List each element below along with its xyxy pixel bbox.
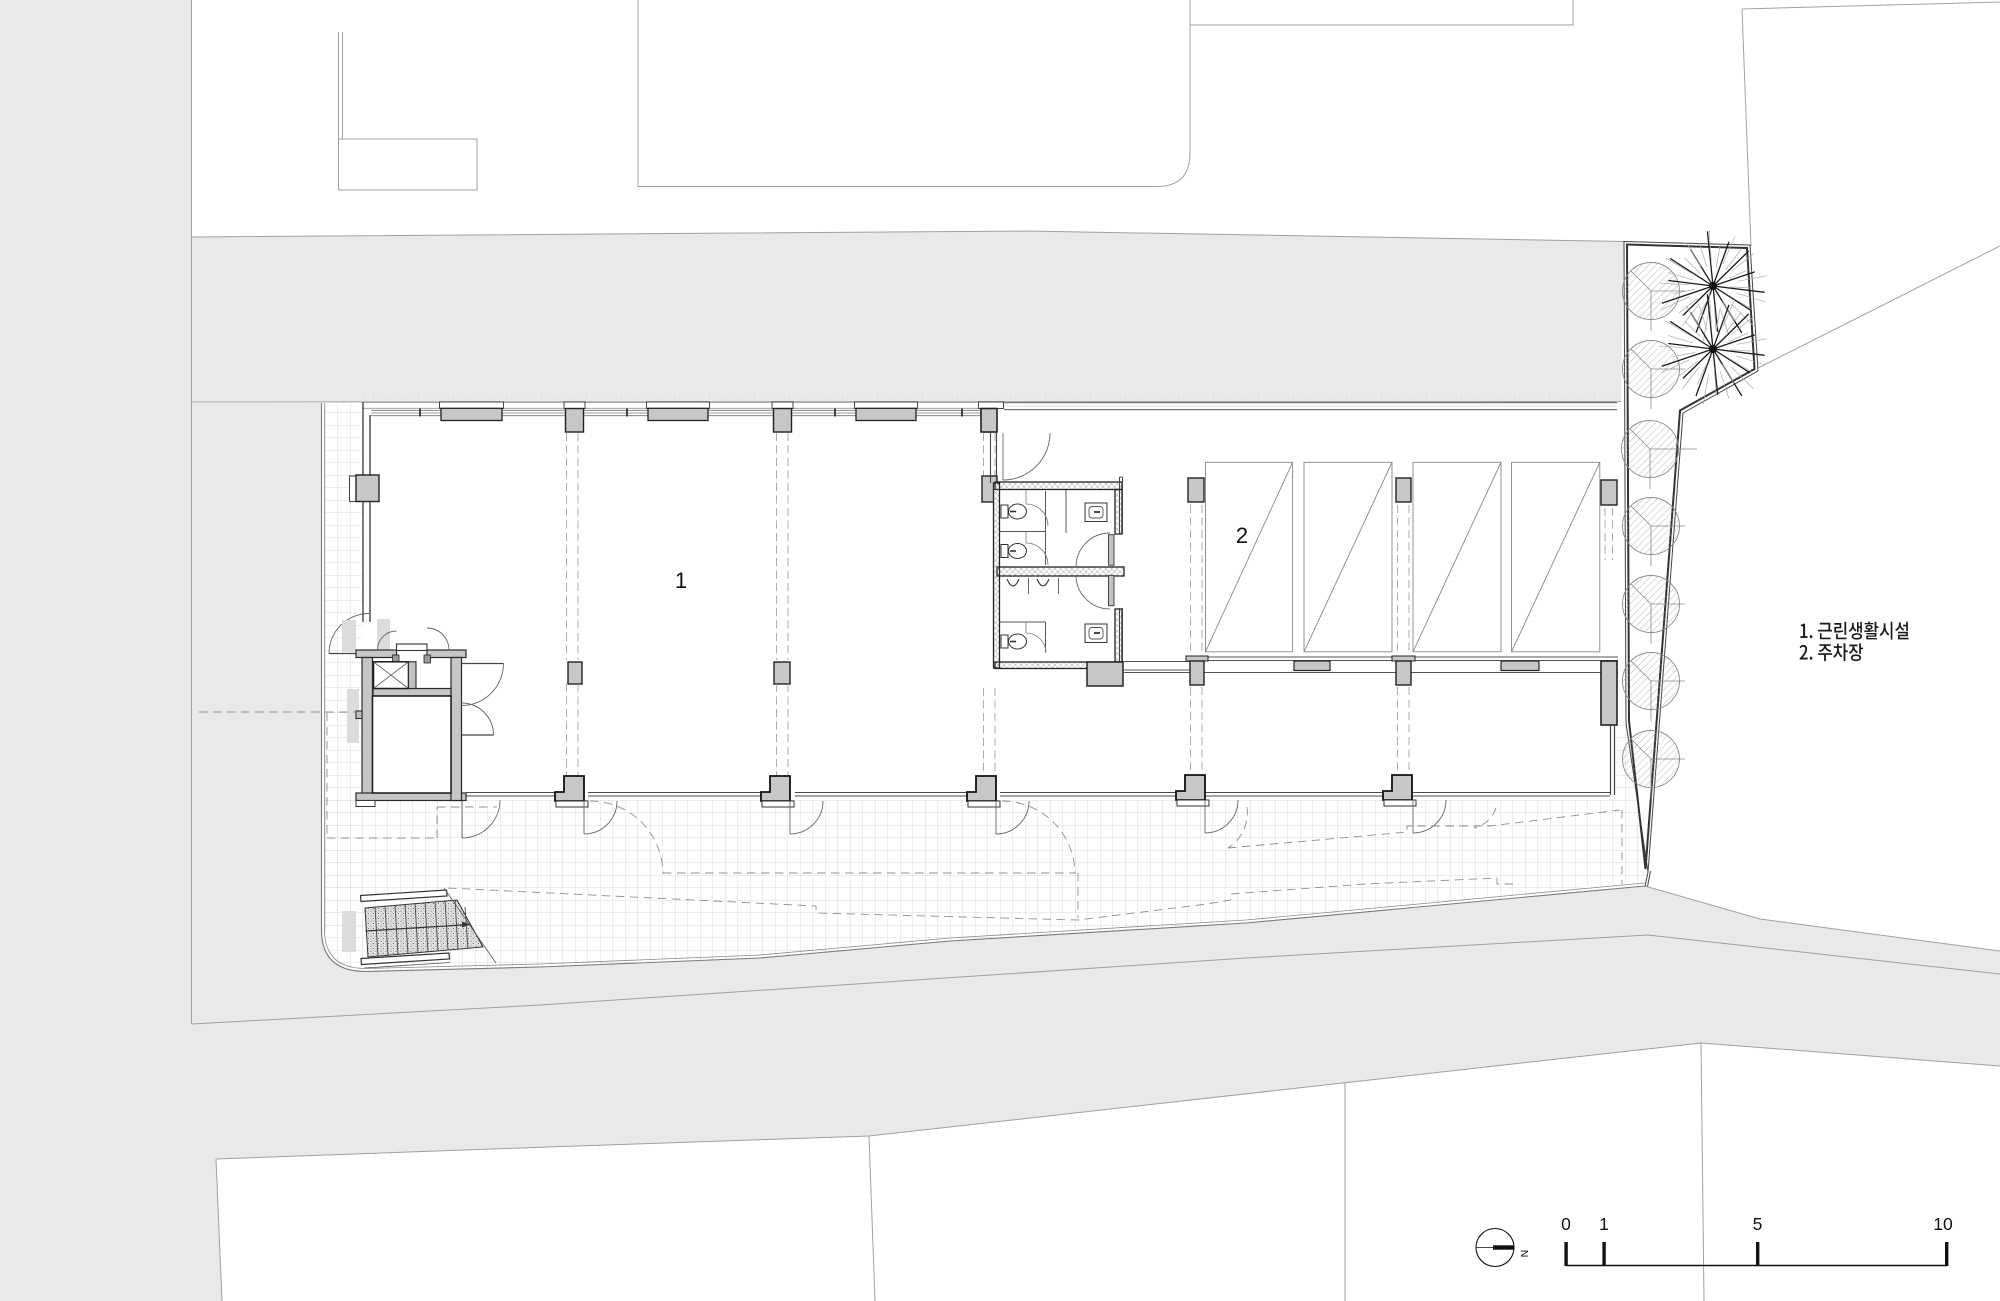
svg-text:2: 2 [1236, 523, 1248, 548]
svg-text:N: N [1518, 1250, 1530, 1258]
svg-text:1: 1 [675, 568, 687, 593]
svg-text:5: 5 [1753, 1214, 1763, 1234]
svg-text:1: 1 [1599, 1214, 1609, 1234]
svg-text:0: 0 [1561, 1214, 1571, 1234]
svg-text:10: 10 [1933, 1214, 1953, 1234]
